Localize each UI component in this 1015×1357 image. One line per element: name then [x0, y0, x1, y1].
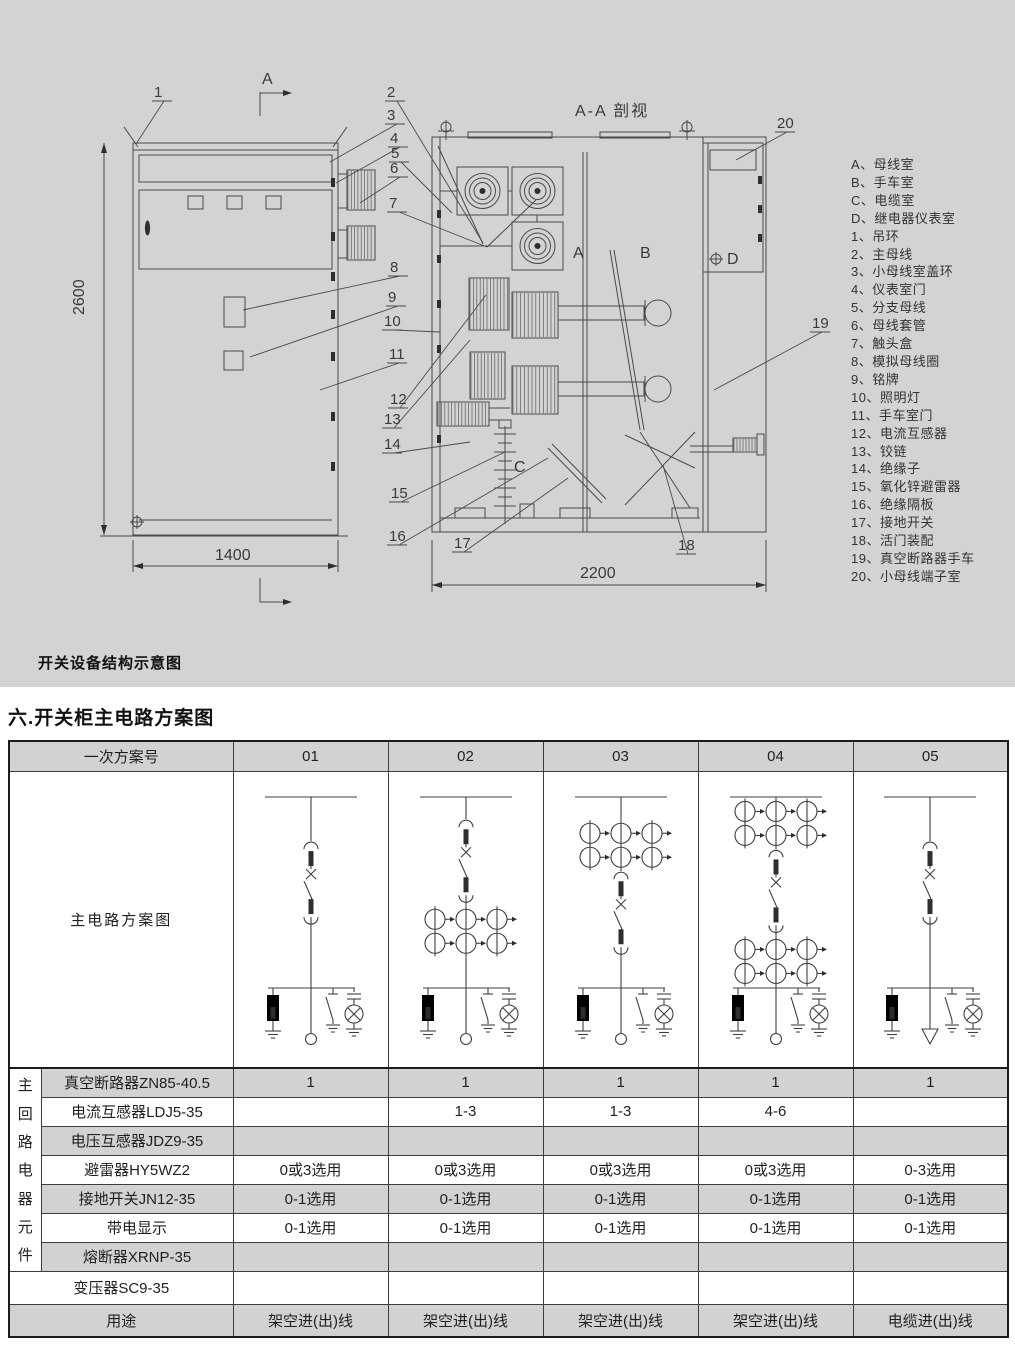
legend-item: 18、活门装配	[851, 532, 1013, 550]
value-cell	[543, 1242, 698, 1271]
scheme-diagram-02	[388, 772, 543, 1069]
value-cell	[543, 1126, 698, 1155]
value-cell	[233, 1126, 388, 1155]
callout-3: 3	[387, 107, 395, 124]
value-cell: 0-1选用	[388, 1184, 543, 1213]
section-cut-arrow-top	[260, 90, 292, 116]
row-label: 真空断路器ZN85-40.5	[41, 1068, 233, 1097]
value-cell	[698, 1271, 853, 1304]
callout-20: 20	[777, 115, 794, 132]
legend-item: 15、氧化锌避雷器	[851, 478, 1013, 496]
table-row: 避雷器HY5WZ20或3选用0或3选用0或3选用0或3选用0-3选用	[9, 1155, 1008, 1184]
value-cell: 0-1选用	[698, 1213, 853, 1242]
callout-18: 18	[678, 537, 695, 554]
compartment-c-label: C	[514, 459, 526, 476]
row-label: 变压器SC9-35	[9, 1271, 233, 1304]
value-cell: 1	[543, 1068, 698, 1097]
callout-10: 10	[384, 313, 401, 330]
callout-1: 1	[154, 84, 162, 101]
coil-hatch-2	[348, 227, 371, 259]
value-cell: 架空进(出)线	[233, 1304, 388, 1337]
legend-item: 16、绝缘隔板	[851, 496, 1013, 514]
legend-item: 7、触头盒	[851, 335, 1013, 353]
section-view-drawing	[432, 120, 766, 532]
value-cell: 0-1选用	[543, 1213, 698, 1242]
row-label: 接地开关JN12-35	[41, 1184, 233, 1213]
legend-item: 5、分支母线	[851, 299, 1013, 317]
ct-hatch-1	[470, 279, 507, 329]
callout-14: 14	[384, 436, 401, 453]
legend-item: 4、仪表室门	[851, 281, 1013, 299]
table-header-row: 一次方案号 01 02 03 04 05	[9, 741, 1008, 772]
diagram-caption: 开关设备结构示意图	[38, 652, 182, 673]
value-cell	[853, 1126, 1008, 1155]
value-cell	[853, 1242, 1008, 1271]
rod-hatch	[734, 439, 755, 451]
value-cell	[388, 1271, 543, 1304]
row-label: 带电显示	[41, 1213, 233, 1242]
legend-item: 3、小母线室盖环	[851, 263, 1013, 281]
pole-hatch-2	[513, 367, 555, 413]
scheme-diagram-01	[233, 772, 388, 1069]
value-cell: 0或3选用	[543, 1155, 698, 1184]
legend-item: B、手车室	[851, 174, 1013, 192]
value-cell	[543, 1271, 698, 1304]
value-cell: 1	[698, 1068, 853, 1097]
dim-height-text: 2600	[71, 279, 88, 315]
value-cell: 0-1选用	[233, 1213, 388, 1242]
row-label: 电流互感器LDJ5-35	[41, 1097, 233, 1126]
legend-item: 20、小母线端子室	[851, 568, 1013, 586]
value-cell: 电缆进(出)线	[853, 1304, 1008, 1337]
section-view-title: A-A 剖视	[575, 102, 649, 120]
front-view-drawing	[100, 127, 375, 536]
row-label: 用途	[9, 1304, 233, 1337]
scheme-row-label: 主电路方案图	[9, 772, 233, 1069]
value-cell	[698, 1242, 853, 1271]
scheme-diagram-05	[853, 772, 1008, 1069]
table-row: 接地开关JN12-350-1选用0-1选用0-1选用0-1选用0-1选用	[9, 1184, 1008, 1213]
value-cell	[233, 1242, 388, 1271]
ct-hatch-2	[471, 353, 502, 398]
callout-2: 2	[387, 84, 395, 101]
value-cell: 4-6	[698, 1097, 853, 1126]
legend-item: 12、电流互感器	[851, 425, 1013, 443]
callout-13: 13	[384, 411, 401, 428]
table-row: 电流互感器LDJ5-351-31-34-6	[9, 1097, 1008, 1126]
callout-9: 9	[388, 289, 396, 306]
scheme-diagram-04	[698, 772, 853, 1069]
value-cell	[233, 1097, 388, 1126]
value-cell	[388, 1242, 543, 1271]
side-label-main-circuit-components: 主回路电器元件	[9, 1068, 41, 1271]
value-cell: 1-3	[543, 1097, 698, 1126]
compartment-a-label: A	[573, 245, 584, 262]
column-header-04: 04	[698, 741, 853, 772]
section-cut-arrow-bottom	[260, 578, 292, 605]
row-label: 电压互感器JDZ9-35	[41, 1126, 233, 1155]
callout-8: 8	[390, 259, 398, 276]
pole-hatch-1	[513, 293, 555, 337]
column-header-03: 03	[543, 741, 698, 772]
value-cell	[853, 1097, 1008, 1126]
legend-item: 11、手车室门	[851, 407, 1013, 425]
dim-height	[101, 143, 107, 535]
row-label: 熔断器XRNP-35	[41, 1242, 233, 1271]
value-cell: 1	[233, 1068, 388, 1097]
value-cell: 架空进(出)线	[543, 1304, 698, 1337]
value-cell: 0或3选用	[233, 1155, 388, 1184]
callout-19: 19	[812, 315, 829, 332]
column-header-02: 02	[388, 741, 543, 772]
value-cell: 0-1选用	[388, 1213, 543, 1242]
scheme-diagrams-row: 主电路方案图	[9, 772, 1008, 1069]
value-cell: 0-1选用	[543, 1184, 698, 1213]
value-cell: 0-1选用	[698, 1184, 853, 1213]
parts-legend: A、母线室B、手车室C、电缆室D、继电器仪表室1、吊环2、主母线3、小母线室盖环…	[851, 156, 1013, 586]
section-title: 六.开关柜主电路方案图	[8, 703, 1015, 730]
callout-16: 16	[389, 528, 406, 545]
bushing-hatch	[438, 403, 486, 425]
value-cell: 架空进(出)线	[388, 1304, 543, 1337]
table-row: 主回路电器元件真空断路器ZN85-40.511111	[9, 1068, 1008, 1097]
value-cell: 0或3选用	[388, 1155, 543, 1184]
scheme-diagram-03	[543, 772, 698, 1069]
callout-12: 12	[390, 391, 407, 408]
row-label: 避雷器HY5WZ2	[41, 1155, 233, 1184]
legend-item: 8、模拟母线圈	[851, 353, 1013, 371]
legend-item: C、电缆室	[851, 192, 1013, 210]
legend-item: 10、照明灯	[851, 389, 1013, 407]
legend-item: 2、主母线	[851, 246, 1013, 264]
column-header-01: 01	[233, 741, 388, 772]
value-cell: 0或3选用	[698, 1155, 853, 1184]
value-cell: 0-1选用	[853, 1213, 1008, 1242]
dim-depth-text: 2200	[580, 565, 616, 582]
section-cut-label: A	[262, 71, 273, 88]
column-header-05: 05	[853, 741, 1008, 772]
legend-item: 9、铭牌	[851, 371, 1013, 389]
value-cell	[698, 1126, 853, 1155]
compartment-d-label: D	[727, 251, 739, 268]
value-cell: 0-1选用	[233, 1184, 388, 1213]
corner-header-cell: 一次方案号	[9, 741, 233, 772]
coil-hatch-1	[348, 171, 371, 209]
legend-item: 19、真空断路器手车	[851, 550, 1013, 568]
table-row: 熔断器XRNP-35	[9, 1242, 1008, 1271]
legend-item: 1、吊环	[851, 228, 1013, 246]
value-cell	[233, 1271, 388, 1304]
legend-item: 13、铰链	[851, 443, 1013, 461]
callout-17: 17	[454, 535, 471, 552]
table-row: 带电显示0-1选用0-1选用0-1选用0-1选用0-1选用	[9, 1213, 1008, 1242]
value-cell: 架空进(出)线	[698, 1304, 853, 1337]
legend-item: D、继电器仪表室	[851, 210, 1013, 228]
table-row: 变压器SC9-35	[9, 1271, 1008, 1304]
value-cell: 1	[853, 1068, 1008, 1097]
legend-item: 14、绝缘子	[851, 460, 1013, 478]
compartment-b-label: B	[640, 245, 651, 262]
value-cell: 1	[388, 1068, 543, 1097]
value-cell: 0-1选用	[853, 1184, 1008, 1213]
callout-15: 15	[391, 485, 408, 502]
callout-6: 6	[390, 160, 398, 177]
switchgear-structure-diagram: 2600 1400 A A-A 剖视	[0, 0, 1015, 687]
value-cell	[388, 1126, 543, 1155]
callout-11: 11	[389, 346, 405, 363]
table-row: 电压互感器JDZ9-35	[9, 1126, 1008, 1155]
value-cell: 0-3选用	[853, 1155, 1008, 1184]
table-row: 用途架空进(出)线架空进(出)线架空进(出)线架空进(出)线电缆进(出)线	[9, 1304, 1008, 1337]
legend-item: 17、接地开关	[851, 514, 1013, 532]
value-cell: 1-3	[388, 1097, 543, 1126]
legend-item: A、母线室	[851, 156, 1013, 174]
legend-item: 6、母线套管	[851, 317, 1013, 335]
main-circuit-scheme-table: 一次方案号 01 02 03 04 05 主电路方案图 主回路电器元件真空断路器…	[8, 740, 1009, 1338]
callout-7: 7	[389, 195, 397, 212]
value-cell	[853, 1271, 1008, 1304]
dim-width-text: 1400	[215, 547, 251, 564]
